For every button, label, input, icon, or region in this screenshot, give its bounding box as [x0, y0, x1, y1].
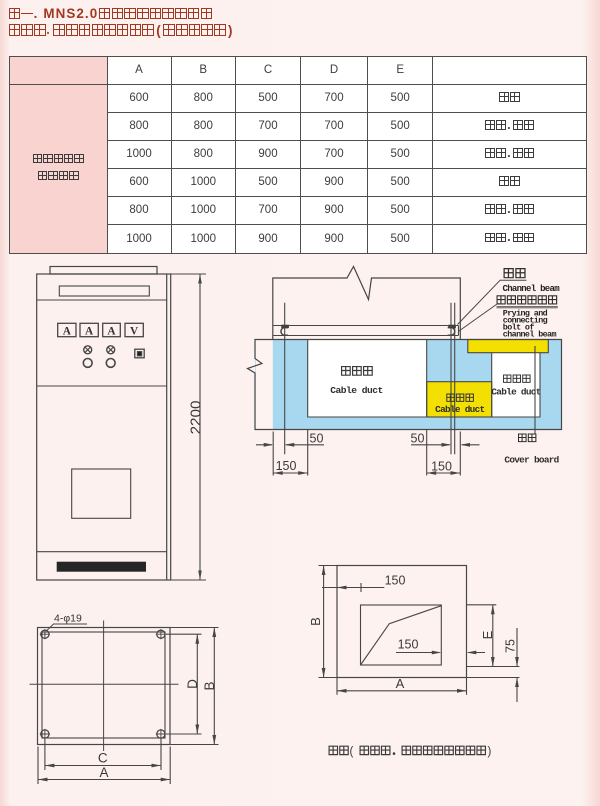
svg-text:4-φ19: 4-φ19: [54, 613, 82, 625]
svg-text:A: A: [63, 326, 72, 338]
svg-text:Cover board: Cover board: [504, 455, 558, 466]
svg-text:150: 150: [398, 638, 419, 652]
svg-text:50: 50: [310, 432, 324, 446]
svg-text:Cable duct: Cable duct: [435, 404, 484, 415]
svg-text:D: D: [185, 679, 200, 689]
svg-text:): ): [488, 746, 492, 758]
svg-text:Cable duct: Cable duct: [330, 385, 383, 396]
svg-text:150: 150: [385, 574, 406, 588]
svg-text:V: V: [130, 326, 139, 338]
svg-text:B: B: [308, 617, 323, 626]
svg-text:C: C: [98, 751, 108, 766]
svg-text:channel beam: channel beam: [503, 330, 557, 340]
svg-text:50: 50: [411, 432, 425, 446]
svg-text:A: A: [107, 326, 116, 338]
svg-text:2200: 2200: [188, 401, 205, 435]
svg-text:(: (: [350, 746, 354, 758]
svg-text:A: A: [85, 326, 94, 338]
svg-text:150: 150: [276, 459, 297, 473]
svg-text:150: 150: [431, 460, 452, 474]
svg-text:Cable duct: Cable duct: [491, 387, 540, 398]
svg-text:E: E: [480, 630, 495, 639]
svg-text:75: 75: [503, 639, 517, 653]
svg-text:A: A: [99, 765, 108, 780]
svg-text:Channel beam: Channel beam: [503, 284, 561, 294]
svg-text:A: A: [396, 676, 405, 691]
svg-text:B: B: [202, 681, 217, 690]
